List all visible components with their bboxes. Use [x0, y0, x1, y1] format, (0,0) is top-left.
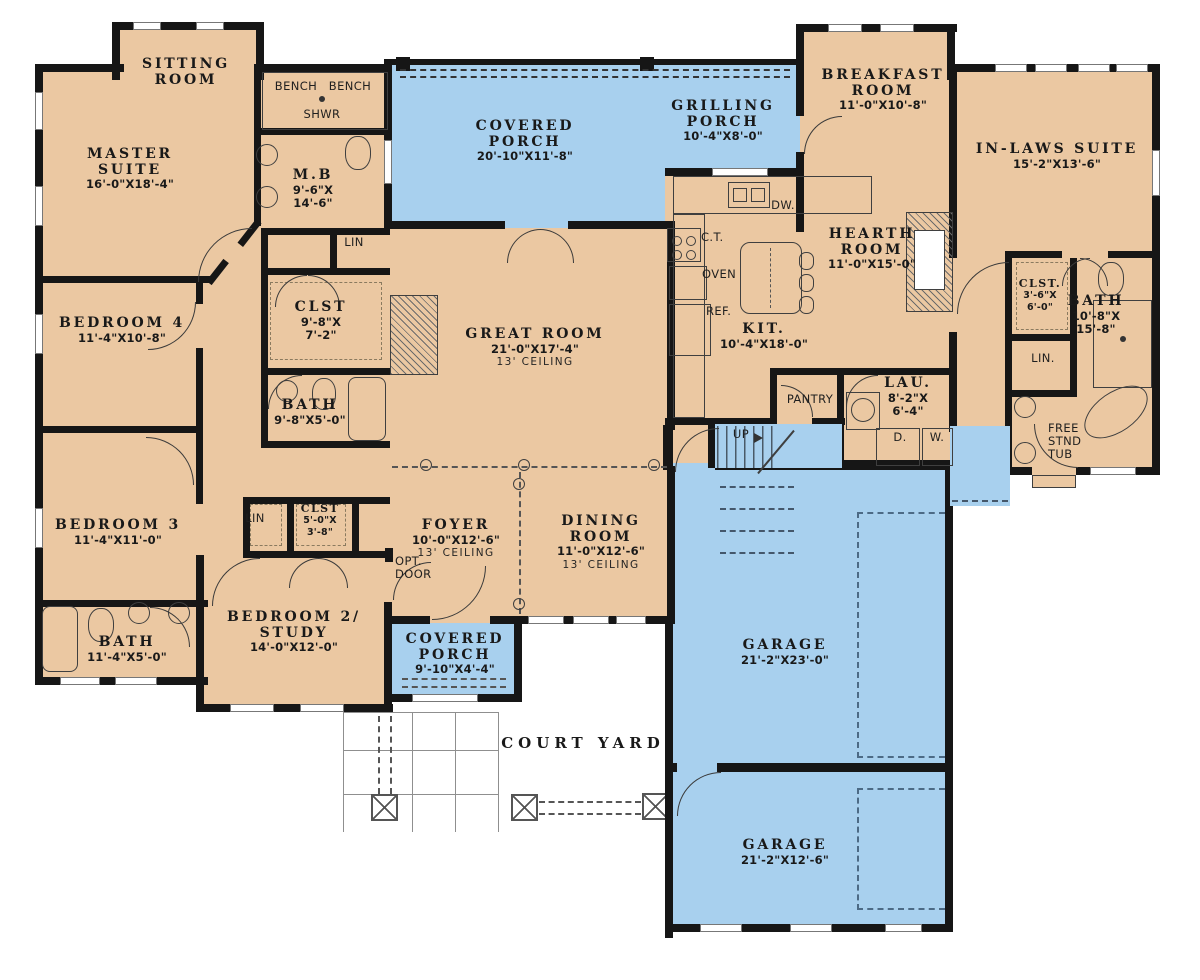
master-suite-label: MASTERSUITE16'-0"X18'-4"	[86, 147, 174, 192]
clst-inlaws-label: CLST.3'-6"X6'-0"	[1019, 278, 1062, 313]
shwr-label: SHWR	[304, 108, 341, 121]
refrigerator-label: REF.	[706, 305, 731, 318]
column	[513, 598, 525, 610]
window	[35, 314, 43, 354]
covered-porch-2-label: COVEREDPORCH9'-10"X4'-4"	[406, 632, 505, 677]
covered-porch-label: COVEREDPORCH20'-10"X11'-8"	[476, 119, 575, 164]
oven-label: OVEN	[702, 268, 736, 281]
breezeway-area	[950, 426, 1010, 506]
burner	[686, 236, 696, 246]
courtyard-column	[511, 794, 538, 821]
trellis-beam	[539, 813, 641, 815]
clst-master-label: CLST9'-8"X7'-2"	[295, 300, 348, 343]
wall	[1005, 251, 1062, 258]
ceiling-dash	[720, 508, 794, 510]
wall	[490, 616, 514, 624]
laundry-label: LAU.8'-2"X6'-4"	[884, 376, 932, 419]
clst-hall-label: CLST5'-0"X3'-8"	[301, 503, 340, 538]
porch-beam-dash	[402, 678, 506, 680]
sink	[256, 144, 278, 166]
toilet	[345, 136, 371, 170]
stool	[799, 296, 814, 314]
window	[133, 22, 161, 30]
lin-inlaws-label: LIN.	[1031, 352, 1055, 365]
porch-edge	[388, 59, 802, 65]
column-line	[519, 472, 521, 614]
wall	[945, 770, 953, 932]
window	[573, 616, 609, 624]
window	[35, 186, 43, 226]
wall	[717, 763, 953, 772]
wall	[385, 548, 393, 562]
media-fireplace	[390, 295, 438, 375]
ceiling-dash	[720, 530, 794, 532]
breezeway-roof-dash	[952, 500, 1008, 502]
wall	[392, 616, 430, 624]
wall	[196, 704, 393, 712]
wall	[196, 348, 203, 433]
wall	[261, 441, 390, 448]
wall	[196, 555, 204, 707]
wall	[568, 221, 675, 229]
garage-door	[885, 924, 922, 932]
wall	[256, 64, 390, 72]
ceiling-dash	[720, 486, 794, 488]
window	[1078, 64, 1110, 72]
window	[712, 168, 768, 176]
bedroom-3-label: BEDROOM 311'-4"X11'-0"	[55, 518, 181, 547]
bath-3-label: BATH11'-4"X5'-0"	[87, 635, 167, 664]
garage-door	[790, 924, 832, 932]
column	[648, 459, 660, 471]
wall	[1070, 341, 1077, 397]
wall	[665, 168, 712, 176]
kitchen-island	[740, 242, 802, 314]
bedroom-4-label: BEDROOM 411'-4"X10'-8"	[59, 316, 185, 345]
grilling-porch-label: GRILLINGPORCH10'-4"X8'-0"	[671, 99, 775, 144]
window	[1116, 64, 1148, 72]
wall	[800, 24, 957, 32]
refrigerator-appliance	[669, 304, 711, 356]
wall	[330, 228, 337, 275]
dryer-label: D.	[893, 431, 906, 444]
window	[1152, 150, 1160, 196]
window	[60, 677, 100, 685]
breakfast-room-label: BREAKFASTROOM11'-0"X10'-8"	[822, 68, 945, 113]
window	[35, 92, 43, 130]
burner	[686, 250, 696, 260]
column	[513, 478, 525, 490]
sink-basin	[733, 188, 747, 202]
window	[384, 140, 392, 184]
stool	[799, 252, 814, 270]
sink	[128, 602, 150, 624]
shower-head	[1120, 336, 1126, 342]
wall	[514, 618, 522, 702]
window	[196, 22, 224, 30]
washer-label: W.	[930, 431, 945, 444]
wall	[243, 497, 250, 558]
sink	[1014, 396, 1036, 418]
window	[35, 508, 43, 548]
porch-step	[412, 694, 478, 702]
in-laws-suite-label: IN-LAWS SUITE15'-2"X13'-6"	[976, 142, 1138, 171]
window	[1090, 467, 1136, 475]
foyer-label: FOYER10'-0"X12'-6"13' CEILING	[412, 518, 500, 561]
window	[995, 64, 1027, 72]
trellis-beam	[390, 716, 392, 794]
stool	[799, 274, 814, 292]
burner	[672, 250, 682, 260]
burner	[672, 236, 682, 246]
sink	[1014, 442, 1036, 464]
porch-beam-dash	[402, 686, 506, 688]
wall	[665, 623, 673, 938]
wall	[261, 268, 390, 275]
wall	[287, 497, 294, 558]
bath-2-label: BATH9'-8"X5'-0"	[274, 398, 346, 427]
porch-beam-dash	[400, 76, 790, 78]
wall	[742, 924, 790, 932]
courtyard-column	[371, 794, 398, 821]
walkway-line	[455, 712, 456, 832]
hearth-room-label: HEARTHROOM11'-0"X15'-0"	[828, 227, 916, 272]
window	[616, 616, 646, 624]
wall	[1108, 251, 1160, 258]
tub	[42, 606, 78, 672]
walkway-line	[343, 712, 499, 713]
walkway-line	[498, 712, 499, 832]
garage-door	[700, 924, 742, 932]
porch-beam-dash	[400, 69, 790, 71]
free-stnd-tub-label: FREESTNDTUB	[1048, 422, 1081, 461]
garage-storage-bay	[857, 788, 945, 910]
wall	[770, 368, 842, 375]
wall	[35, 64, 43, 685]
wall	[388, 221, 505, 229]
bench-1-label: BENCH	[275, 80, 317, 93]
island-line	[770, 248, 771, 308]
lin-master-label: LIN	[344, 236, 364, 249]
stairs-up-label: UP	[733, 428, 749, 441]
ceiling-dash	[720, 552, 794, 554]
wall	[609, 616, 616, 624]
court-yard-label: COURT YARD	[501, 735, 665, 752]
window	[528, 616, 564, 624]
wall	[663, 425, 673, 470]
firebox	[914, 230, 945, 290]
up-arrow-icon	[754, 433, 763, 443]
wall	[665, 418, 715, 425]
column	[518, 459, 530, 471]
wall	[35, 276, 212, 283]
tub	[348, 377, 386, 441]
bedroom-2-label: BEDROOM 2/STUDY14'-0"X12'-0"	[227, 610, 361, 655]
wall	[261, 228, 268, 448]
window	[828, 24, 862, 32]
wall	[667, 466, 675, 623]
wall	[768, 168, 804, 176]
kitchen-label: KIT.10'-4"X18'-0"	[720, 322, 808, 351]
wall	[35, 426, 203, 433]
wall	[832, 924, 885, 932]
window	[1035, 64, 1067, 72]
window	[115, 677, 157, 685]
wall	[1152, 64, 1160, 475]
wall	[261, 228, 390, 235]
great-room-label: GREAT ROOM21'-0"X17'-4"13' CEILING	[465, 327, 604, 370]
wall	[261, 368, 390, 375]
wall	[35, 64, 124, 72]
wall	[196, 430, 203, 504]
window	[230, 704, 274, 712]
floor-plan: SITTINGROOMMASTERSUITE16'-0"X18'-4"BENCH…	[0, 0, 1200, 980]
sink	[256, 186, 278, 208]
walkway-line	[343, 712, 344, 832]
garage-2-label: GARAGE21'-2"X12'-6"	[741, 838, 829, 867]
trellis-beam	[378, 716, 380, 794]
walkway-line	[343, 794, 499, 795]
dining-room-label: DININGROOM11'-0"X12'-6"13' CEILING	[557, 514, 645, 573]
wall	[564, 616, 573, 624]
wall	[945, 463, 953, 770]
counter-top-label: C.T.	[701, 231, 724, 244]
wall	[949, 332, 957, 432]
wall	[243, 551, 390, 558]
walkway-line	[412, 712, 413, 832]
bench-2-label: BENCH	[329, 80, 371, 93]
sitting-room-label: SITTINGROOM	[142, 57, 230, 88]
pantry-label: PANTRY	[787, 393, 833, 406]
wall	[796, 24, 804, 116]
sink-basin	[751, 188, 765, 202]
trellis-beam	[539, 801, 641, 803]
dishwasher-label: DW.	[771, 199, 795, 212]
window	[880, 24, 914, 32]
column	[420, 459, 432, 471]
walkway-line	[343, 750, 499, 751]
garage-storage-bay	[857, 512, 945, 758]
wall	[514, 616, 528, 624]
master-bath-label: M.B9'-6"X14'-6"	[293, 168, 334, 211]
inlaws-entry-stoop	[1032, 475, 1076, 488]
garage-1-label: GARAGE21'-2"X23'-0"	[741, 638, 829, 667]
wall	[922, 924, 953, 932]
shower-head	[319, 96, 325, 102]
wall	[352, 497, 359, 558]
bath-inlaws-label: BATH10'-8"X15'-8"	[1068, 294, 1125, 337]
window	[300, 704, 344, 712]
lin-hall-label: LIN	[245, 512, 265, 525]
wall	[844, 368, 955, 375]
